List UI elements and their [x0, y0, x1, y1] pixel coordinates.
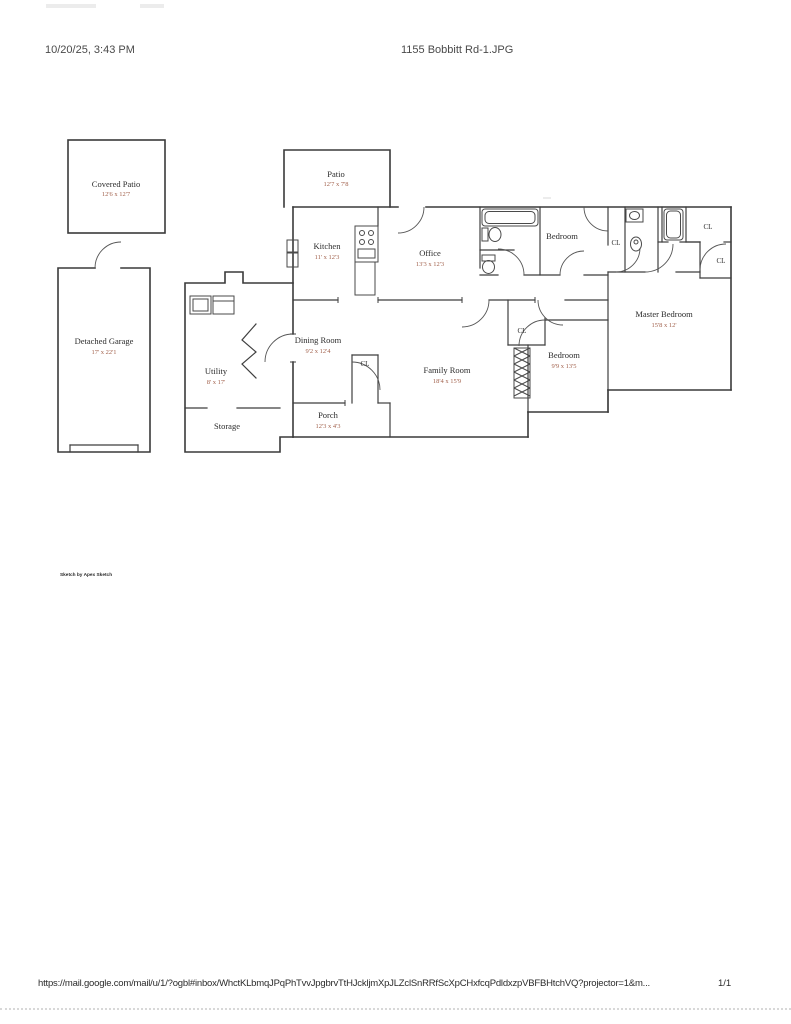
room-label: Bedroom [548, 350, 580, 360]
room-dims: 12'6 x 12'7 [102, 191, 131, 198]
room-bedroom2: Bedroom 9'9 x 13'5 [548, 350, 580, 370]
room-porch: Porch 12'3 x 4'3 [315, 410, 340, 430]
bathtub-icon [482, 209, 538, 226]
room-dims: 9'9 x 13'5 [551, 363, 576, 370]
closet-label: CL [717, 257, 726, 265]
dryer-icon [213, 296, 234, 314]
floorplan-drawing: Covered Patio 12'6 x 12'7 Detached Garag… [0, 0, 791, 1024]
room-dims: 12'3 x 4'3 [315, 423, 340, 430]
room-dims: 11' x 12'3 [315, 254, 340, 261]
bathtub-icon [664, 209, 683, 240]
sketch-credit: Sketch by Apex Sketch [60, 572, 112, 578]
room-dims: 8' x 17' [207, 379, 226, 386]
master-bath-fixtures [626, 209, 683, 251]
room-kitchen: Kitchen 11' x 12'3 [314, 241, 342, 261]
room-utility: Utility 8' x 17' Storage [185, 272, 293, 452]
scan-artifact-line [0, 1008, 791, 1010]
room-label: Bedroom [546, 231, 578, 241]
room-label: Covered Patio [92, 179, 140, 189]
print-footer-page-indicator: 1/1 [718, 978, 731, 989]
room-label: Office [419, 248, 441, 258]
room-label: Detached Garage [75, 336, 134, 346]
bifold-door-icon [242, 324, 256, 378]
closet-label: CL [704, 223, 713, 231]
room-dims: 12'7 x 7'8 [323, 181, 348, 188]
print-footer-url: https://mail.google.com/mail/u/1/?ogbl#i… [38, 978, 650, 989]
room-dims: 15'8 x 12' [651, 322, 676, 329]
room-label: Utility [205, 366, 228, 376]
room-dims: 17' x 22'1 [91, 349, 116, 356]
printed-page: { "header": { "datetime": "10/20/25, 3:4… [0, 0, 791, 1024]
toilet-icon [482, 255, 495, 274]
room-covered-patio: Covered Patio 12'6 x 12'7 [68, 140, 165, 233]
room-label: Porch [318, 410, 339, 420]
toilet-icon [631, 237, 642, 251]
room-bedroom-top: Bedroom [546, 231, 578, 241]
room-detached-garage: Detached Garage 17' x 22'1 [58, 242, 150, 452]
room-master-bedroom: Master Bedroom 15'8 x 12' [635, 309, 693, 329]
hall-bath-fixtures [482, 209, 538, 274]
sink-icon [626, 209, 643, 222]
room-patio: Patio 12'7 x 7'8 [284, 150, 424, 233]
closet-label: CL [518, 327, 527, 335]
room-label: Master Bedroom [635, 309, 693, 319]
closet-label: CL [612, 239, 621, 247]
room-dims: 18'4 x 15'9 [433, 378, 461, 385]
toilet-icon [482, 228, 501, 242]
room-label: Storage [214, 421, 240, 431]
room-dims: 13'3 x 12'3 [416, 261, 444, 268]
door-swing-arcs [352, 207, 726, 390]
counter-icon [355, 262, 375, 295]
room-office: Office 13'3 x 12'3 [416, 248, 444, 268]
washer-icon [190, 296, 211, 314]
room-dims: 9'2 x 12'4 [305, 348, 331, 355]
room-label: Patio [327, 169, 344, 179]
room-label: Family Room [424, 365, 471, 375]
room-family-room: Family Room 18'4 x 15'9 [424, 365, 471, 385]
stove-icon [355, 226, 378, 262]
closet-label: CL [361, 360, 370, 368]
room-dining-room: Dining Room 9'2 x 12'4 [295, 335, 342, 355]
room-label: Dining Room [295, 335, 342, 345]
room-label: Kitchen [314, 241, 342, 251]
